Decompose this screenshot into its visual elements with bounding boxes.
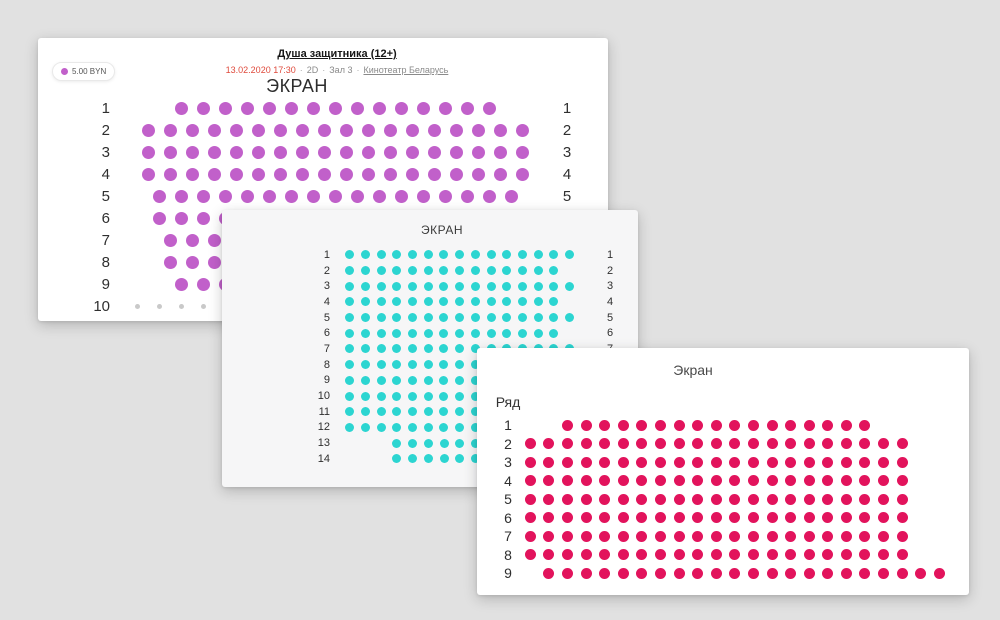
seat-dot[interactable] <box>893 509 912 528</box>
seat-dot[interactable] <box>530 310 546 326</box>
seat-dot[interactable] <box>468 294 484 310</box>
seat-dot[interactable] <box>540 564 559 583</box>
seat-dot[interactable] <box>389 294 405 310</box>
seat-dot[interactable] <box>540 509 559 528</box>
seat-dot[interactable] <box>651 416 670 435</box>
seat-dot[interactable] <box>688 546 707 565</box>
seat-dot[interactable] <box>342 388 358 404</box>
seat-dot[interactable] <box>781 509 800 528</box>
seat-dot[interactable] <box>819 453 838 472</box>
seat-dot[interactable] <box>436 357 452 373</box>
seat-dot[interactable] <box>137 141 159 163</box>
seat-dot[interactable] <box>342 341 358 357</box>
seat-dot[interactable] <box>342 404 358 420</box>
seat-dot[interactable] <box>577 416 596 435</box>
seat-dot[interactable] <box>436 310 452 326</box>
seat-dot[interactable] <box>390 185 412 207</box>
seat-dot[interactable] <box>530 247 546 263</box>
seat-dot[interactable] <box>478 97 500 119</box>
seat-dot[interactable] <box>483 294 499 310</box>
seat-dot[interactable] <box>800 435 819 454</box>
seat-dot[interactable] <box>893 472 912 491</box>
seat-dot[interactable] <box>707 416 726 435</box>
seat-dot[interactable] <box>688 472 707 491</box>
seat-dot[interactable] <box>614 546 633 565</box>
seat-dot[interactable] <box>313 119 335 141</box>
movie-title-link[interactable]: Душа защитника (12+) <box>277 48 396 60</box>
seat-dot[interactable] <box>856 453 875 472</box>
seat-dot[interactable] <box>342 294 358 310</box>
seat-dot[interactable] <box>452 435 468 451</box>
seat-dot[interactable] <box>558 453 577 472</box>
seat-dot[interactable] <box>467 163 489 185</box>
seat-dot[interactable] <box>335 119 357 141</box>
seat-dot[interactable] <box>688 490 707 509</box>
seat-dot[interactable] <box>874 564 893 583</box>
seat-dot[interactable] <box>577 453 596 472</box>
seat-dot[interactable] <box>405 294 421 310</box>
seat-dot[interactable] <box>420 404 436 420</box>
seat-dot[interactable] <box>499 294 515 310</box>
seat-dot[interactable] <box>452 404 468 420</box>
seat-dot[interactable] <box>291 163 313 185</box>
seat-dot[interactable] <box>893 564 912 583</box>
seat-dot[interactable] <box>478 185 500 207</box>
seat-dot[interactable] <box>401 163 423 185</box>
seat-dot[interactable] <box>763 472 782 491</box>
seat-dot[interactable] <box>405 247 421 263</box>
seat-dot[interactable] <box>577 490 596 509</box>
seat-dot[interactable] <box>595 490 614 509</box>
seat-dot[interactable] <box>546 325 562 341</box>
seat-dot[interactable] <box>358 278 374 294</box>
seat-dot[interactable] <box>511 119 533 141</box>
seat-dot[interactable] <box>651 453 670 472</box>
seat-dot[interactable] <box>633 472 652 491</box>
seat-dot[interactable] <box>837 527 856 546</box>
seat-dot[interactable] <box>358 294 374 310</box>
seat-dot[interactable] <box>558 527 577 546</box>
seat-dot[interactable] <box>181 163 203 185</box>
seat-dot[interactable] <box>688 509 707 528</box>
seat-dot[interactable] <box>358 357 374 373</box>
seat-dot[interactable] <box>856 416 875 435</box>
seat-dot[interactable] <box>819 416 838 435</box>
seat-dot[interactable] <box>420 373 436 389</box>
seat-dot[interactable] <box>401 119 423 141</box>
seat-dot[interactable] <box>346 97 368 119</box>
seat-dot[interactable] <box>420 420 436 436</box>
seat-dot[interactable] <box>651 546 670 565</box>
seat-dot[interactable] <box>688 453 707 472</box>
seat-dot[interactable] <box>291 141 313 163</box>
seat-dot[interactable] <box>389 247 405 263</box>
seat-dot[interactable] <box>137 119 159 141</box>
seat-dot[interactable] <box>269 119 291 141</box>
seat-dot[interactable] <box>452 451 468 467</box>
seat-dot[interactable] <box>800 416 819 435</box>
seat-dot[interactable] <box>595 564 614 583</box>
seat-dot[interactable] <box>781 416 800 435</box>
seat-dot[interactable] <box>225 141 247 163</box>
seat-dot[interactable] <box>726 546 745 565</box>
seat-dot[interactable] <box>577 435 596 454</box>
seat-dot[interactable] <box>192 185 214 207</box>
seat-dot[interactable] <box>577 472 596 491</box>
seat-dot[interactable] <box>483 310 499 326</box>
seat-dot[interactable] <box>358 404 374 420</box>
seat-dot[interactable] <box>405 325 421 341</box>
seat-dot[interactable] <box>781 546 800 565</box>
seat-dot[interactable] <box>358 420 374 436</box>
seat-dot[interactable] <box>452 388 468 404</box>
seat-dot[interactable] <box>373 341 389 357</box>
seat-dot[interactable] <box>420 247 436 263</box>
seat-dot[interactable] <box>436 247 452 263</box>
seat-dot[interactable] <box>342 357 358 373</box>
seat-dot[interactable] <box>420 357 436 373</box>
seat-dot[interactable] <box>468 278 484 294</box>
seat-dot[interactable] <box>456 185 478 207</box>
seat-dot[interactable] <box>874 490 893 509</box>
seat-dot[interactable] <box>412 185 434 207</box>
seat-dot[interactable] <box>856 509 875 528</box>
seat-dot[interactable] <box>405 357 421 373</box>
seat-dot[interactable] <box>670 416 689 435</box>
seat-dot[interactable] <box>614 564 633 583</box>
seat-dot[interactable] <box>420 388 436 404</box>
seat-dot[interactable] <box>280 185 302 207</box>
seat-dot[interactable] <box>346 185 368 207</box>
seat-dot[interactable] <box>137 163 159 185</box>
seat-dot[interactable] <box>744 453 763 472</box>
seat-dot[interactable] <box>420 263 436 279</box>
seat-dot[interactable] <box>342 278 358 294</box>
seat-dot[interactable] <box>781 527 800 546</box>
seat-dot[interactable] <box>540 527 559 546</box>
seat-dot[interactable] <box>595 509 614 528</box>
seat-dot[interactable] <box>389 373 405 389</box>
seat-dot[interactable] <box>405 404 421 420</box>
seat-dot[interactable] <box>688 435 707 454</box>
seat-dot[interactable] <box>324 185 346 207</box>
seat-dot[interactable] <box>530 278 546 294</box>
seat-dot[interactable] <box>373 278 389 294</box>
seat-dot[interactable] <box>819 509 838 528</box>
seat-dot[interactable] <box>452 263 468 279</box>
seat-dot[interactable] <box>558 416 577 435</box>
seat-dot[interactable] <box>688 564 707 583</box>
seat-dot[interactable] <box>389 388 405 404</box>
seat-dot[interactable] <box>452 310 468 326</box>
seat-dot[interactable] <box>159 251 181 273</box>
seat-dot[interactable] <box>521 527 540 546</box>
seat-dot[interactable] <box>203 141 225 163</box>
seat-dot[interactable] <box>558 490 577 509</box>
seat-dot[interactable] <box>562 278 578 294</box>
seat-dot[interactable] <box>420 325 436 341</box>
seat-dot[interactable] <box>389 341 405 357</box>
seat-dot[interactable] <box>389 278 405 294</box>
seat-dot[interactable] <box>558 435 577 454</box>
seat-dot[interactable] <box>595 453 614 472</box>
seat-dot[interactable] <box>358 388 374 404</box>
seat-dot[interactable] <box>521 472 540 491</box>
seat-dot[interactable] <box>874 472 893 491</box>
seat-dot[interactable] <box>436 435 452 451</box>
seat-dot[interactable] <box>389 263 405 279</box>
seat-dot[interactable] <box>258 185 280 207</box>
seat-dot[interactable] <box>577 527 596 546</box>
seat-dot[interactable] <box>269 163 291 185</box>
seat-dot[interactable] <box>781 453 800 472</box>
seat-dot[interactable] <box>819 546 838 565</box>
seat-dot[interactable] <box>405 341 421 357</box>
seat-dot[interactable] <box>595 546 614 565</box>
seat-dot[interactable] <box>423 141 445 163</box>
seat-dot[interactable] <box>515 325 531 341</box>
seat-dot[interactable] <box>436 263 452 279</box>
seat-dot[interactable] <box>436 325 452 341</box>
seat-dot[interactable] <box>744 416 763 435</box>
seat-dot[interactable] <box>269 141 291 163</box>
seat-dot[interactable] <box>489 119 511 141</box>
seat-dot[interactable] <box>744 509 763 528</box>
seat-dot[interactable] <box>452 278 468 294</box>
seat-dot[interactable] <box>468 310 484 326</box>
seat-dot[interactable] <box>420 341 436 357</box>
seat-dot[interactable] <box>373 404 389 420</box>
seat-dot[interactable] <box>452 373 468 389</box>
seat-dot[interactable] <box>800 527 819 546</box>
seat-dot[interactable] <box>389 420 405 436</box>
seat-dot[interactable] <box>614 509 633 528</box>
seat-dot[interactable] <box>800 453 819 472</box>
seat-dot[interactable] <box>670 527 689 546</box>
seat-dot[interactable] <box>412 97 434 119</box>
seat-dot[interactable] <box>819 435 838 454</box>
seat-dot[interactable] <box>595 416 614 435</box>
seat-dot[interactable] <box>342 373 358 389</box>
seat-dot[interactable] <box>726 527 745 546</box>
seat-dot[interactable] <box>540 472 559 491</box>
seat-dot[interactable] <box>313 141 335 163</box>
seat-dot[interactable] <box>577 546 596 565</box>
seat-dot[interactable] <box>499 247 515 263</box>
seat-dot[interactable] <box>467 141 489 163</box>
seat-dot[interactable] <box>342 263 358 279</box>
seat-dot[interactable] <box>489 163 511 185</box>
seat-dot[interactable] <box>930 564 949 583</box>
seat-dot[interactable] <box>401 141 423 163</box>
seat-dot[interactable] <box>763 435 782 454</box>
seat-dot[interactable] <box>373 294 389 310</box>
seat-dot[interactable] <box>389 310 405 326</box>
seat-dot[interactable] <box>357 119 379 141</box>
seat-dot[interactable] <box>436 451 452 467</box>
seat-dot[interactable] <box>893 453 912 472</box>
seat-dot[interactable] <box>546 263 562 279</box>
seat-dot[interactable] <box>405 451 421 467</box>
seat-dot[interactable] <box>595 527 614 546</box>
seat-dot[interactable] <box>558 509 577 528</box>
seat-dot[interactable] <box>670 435 689 454</box>
seat-dot[interactable] <box>726 453 745 472</box>
seat-dot[interactable] <box>707 490 726 509</box>
seat-dot[interactable] <box>499 310 515 326</box>
seat-dot[interactable] <box>707 435 726 454</box>
seat-dot[interactable] <box>633 490 652 509</box>
seat-dot[interactable] <box>633 435 652 454</box>
seat-dot[interactable] <box>499 278 515 294</box>
seat-dot[interactable] <box>148 185 170 207</box>
seat-dot[interactable] <box>744 564 763 583</box>
seat-dot[interactable] <box>540 453 559 472</box>
seat-dot[interactable] <box>558 564 577 583</box>
seat-dot[interactable] <box>688 416 707 435</box>
seat-dot[interactable] <box>181 229 203 251</box>
seat-dot[interactable] <box>651 527 670 546</box>
seat-dot[interactable] <box>335 163 357 185</box>
seat-dot[interactable] <box>468 325 484 341</box>
seat-dot[interactable] <box>558 546 577 565</box>
seat-dot[interactable] <box>452 341 468 357</box>
seat-dot[interactable] <box>389 404 405 420</box>
seat-dot[interactable] <box>726 416 745 435</box>
seat-dot[interactable] <box>707 564 726 583</box>
seat-dot[interactable] <box>214 97 236 119</box>
seat-dot[interactable] <box>436 388 452 404</box>
seat-dot[interactable] <box>726 509 745 528</box>
seat-dot[interactable] <box>499 325 515 341</box>
seat-dot[interactable] <box>423 119 445 141</box>
seat-dot[interactable] <box>614 453 633 472</box>
seat-dot[interactable] <box>540 435 559 454</box>
seat-dot[interactable] <box>651 472 670 491</box>
seat-dot[interactable] <box>436 373 452 389</box>
seat-dot[interactable] <box>434 185 456 207</box>
seat-dot[interactable] <box>342 310 358 326</box>
seat-dot[interactable] <box>342 420 358 436</box>
seat-dot[interactable] <box>445 141 467 163</box>
seat-dot[interactable] <box>651 564 670 583</box>
seat-dot[interactable] <box>302 185 324 207</box>
seat-dot[interactable] <box>236 97 258 119</box>
seat-dot[interactable] <box>515 247 531 263</box>
seat-dot[interactable] <box>530 325 546 341</box>
seat-dot[interactable] <box>148 207 170 229</box>
seat-dot[interactable] <box>744 435 763 454</box>
seat-dot[interactable] <box>633 546 652 565</box>
seat-dot[interactable] <box>819 564 838 583</box>
seat-dot[interactable] <box>436 294 452 310</box>
seat-dot[interactable] <box>763 546 782 565</box>
seat-dot[interactable] <box>856 527 875 546</box>
seat-dot[interactable] <box>670 453 689 472</box>
seat-dot[interactable] <box>763 527 782 546</box>
seat-dot[interactable] <box>633 527 652 546</box>
seat-dot[interactable] <box>515 278 531 294</box>
seat-dot[interactable] <box>436 404 452 420</box>
seat-dot[interactable] <box>313 163 335 185</box>
seat-dot[interactable] <box>436 341 452 357</box>
seat-dot[interactable] <box>670 490 689 509</box>
seat-dot[interactable] <box>499 263 515 279</box>
seat-dot[interactable] <box>707 509 726 528</box>
seat-dot[interactable] <box>405 388 421 404</box>
seat-dot[interactable] <box>159 141 181 163</box>
seat-dot[interactable] <box>203 163 225 185</box>
seat-dot[interactable] <box>389 435 405 451</box>
seat-dot[interactable] <box>874 509 893 528</box>
seat-dot[interactable] <box>540 546 559 565</box>
seat-dot[interactable] <box>389 451 405 467</box>
seat-dot[interactable] <box>837 546 856 565</box>
seat-dot[interactable] <box>744 472 763 491</box>
seat-dot[interactable] <box>562 247 578 263</box>
seat-dot[interactable] <box>225 119 247 141</box>
seat-dot[interactable] <box>247 141 269 163</box>
seat-dot[interactable] <box>452 325 468 341</box>
seat-dot[interactable] <box>726 472 745 491</box>
seat-dot[interactable] <box>874 527 893 546</box>
seat-dot[interactable] <box>405 373 421 389</box>
seat-dot[interactable] <box>483 263 499 279</box>
seat-dot[interactable] <box>420 310 436 326</box>
seat-dot[interactable] <box>744 546 763 565</box>
seat-dot[interactable] <box>373 420 389 436</box>
seat-dot[interactable] <box>358 373 374 389</box>
seat-dot[interactable] <box>800 546 819 565</box>
seat-dot[interactable] <box>373 357 389 373</box>
seat-dot[interactable] <box>726 490 745 509</box>
seat-dot[interactable] <box>837 416 856 435</box>
seat-dot[interactable] <box>562 310 578 326</box>
seat-dot[interactable] <box>577 509 596 528</box>
seat-dot[interactable] <box>181 251 203 273</box>
seat-dot[interactable] <box>837 472 856 491</box>
seat-dot[interactable] <box>379 163 401 185</box>
seat-dot[interactable] <box>445 119 467 141</box>
seat-dot[interactable] <box>577 564 596 583</box>
seat-dot[interactable] <box>614 472 633 491</box>
seat-dot[interactable] <box>405 435 421 451</box>
seat-dot[interactable] <box>763 416 782 435</box>
seat-dot[interactable] <box>546 294 562 310</box>
seat-dot[interactable] <box>633 416 652 435</box>
seat-dot[interactable] <box>181 119 203 141</box>
seat-dot[interactable] <box>819 472 838 491</box>
seat-dot[interactable] <box>389 357 405 373</box>
seat-dot[interactable] <box>373 263 389 279</box>
seat-dot[interactable] <box>707 472 726 491</box>
seat-dot[interactable] <box>236 185 258 207</box>
seat-dot[interactable] <box>159 119 181 141</box>
seat-dot[interactable] <box>540 490 559 509</box>
seat-dot[interactable] <box>893 527 912 546</box>
seat-dot[interactable] <box>726 435 745 454</box>
seat-dot[interactable] <box>358 263 374 279</box>
seat-dot[interactable] <box>893 546 912 565</box>
seat-dot[interactable] <box>357 141 379 163</box>
seat-dot[interactable] <box>170 97 192 119</box>
seat-dot[interactable] <box>467 119 489 141</box>
seat-dot[interactable] <box>358 341 374 357</box>
seat-dot[interactable] <box>203 119 225 141</box>
seat-dot[interactable] <box>405 278 421 294</box>
seat-dot[interactable] <box>800 490 819 509</box>
seat-dot[interactable] <box>405 420 421 436</box>
